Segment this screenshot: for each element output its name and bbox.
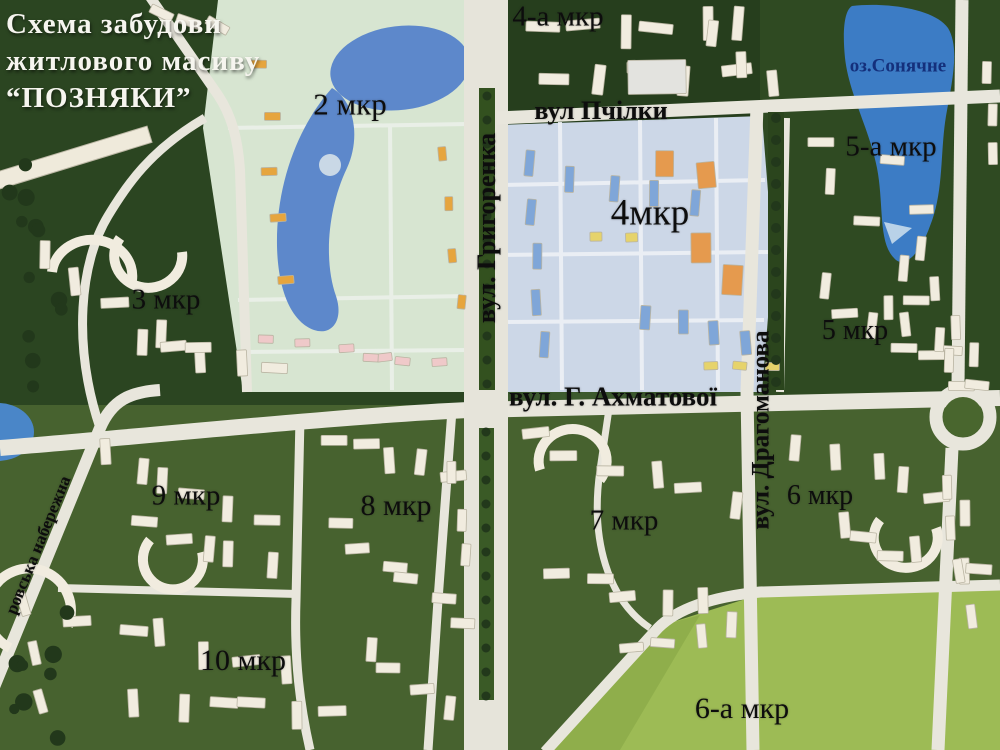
model-building [988, 104, 998, 126]
district-label-6a-mkr: 6-а мкр [695, 694, 789, 724]
model-building [539, 331, 550, 358]
tree-dot [2, 185, 18, 201]
model-building [704, 362, 718, 371]
model-building [353, 439, 379, 449]
model-building [969, 343, 979, 367]
model-building [789, 435, 801, 462]
tree-dot [60, 605, 75, 620]
model-building [690, 190, 701, 217]
model-building [988, 142, 997, 164]
district-label-6mkr: 6 мкр [787, 482, 853, 510]
tree-dot [482, 572, 491, 581]
model-building [451, 618, 475, 629]
district-label-4a-mkr: 4-а мкр [512, 3, 603, 32]
model-building [960, 500, 970, 526]
model-building [531, 289, 542, 315]
model-building [264, 112, 280, 120]
model-building [292, 701, 302, 729]
tree-dot [483, 332, 492, 341]
model-building [874, 453, 885, 479]
model-building [621, 15, 631, 49]
model-building [698, 587, 709, 613]
tree-dot [482, 668, 491, 677]
model-building [652, 461, 664, 489]
model-building [982, 61, 991, 83]
model-building [966, 563, 993, 575]
model-building [457, 295, 466, 310]
tree-dot [482, 524, 491, 533]
model-building [898, 255, 909, 282]
model-building [877, 551, 903, 562]
model-building [656, 151, 674, 177]
district-label-7mkr: 7 мкр [590, 507, 659, 536]
model-building [564, 166, 574, 192]
tree-dot [16, 216, 28, 228]
model-building [237, 697, 265, 708]
tree-dot [17, 660, 28, 671]
district-label-9mkr: 9 мкр [152, 482, 221, 511]
model-building [254, 515, 280, 525]
tree-dot [482, 500, 491, 509]
district-label-4mkr: 4мкр [611, 195, 689, 232]
model-building [732, 361, 747, 370]
model-building [40, 241, 50, 269]
model-building [203, 536, 215, 563]
model-building [376, 663, 400, 673]
model-building [270, 213, 287, 222]
model-building [628, 60, 687, 95]
model-building [166, 533, 193, 545]
title-line-1: Схема забудови [6, 6, 260, 43]
model-building [318, 706, 346, 717]
model-building [137, 458, 149, 485]
median-lower [479, 428, 494, 700]
model-building [127, 689, 139, 718]
model-building [131, 515, 158, 527]
tree-dot [483, 380, 492, 389]
model-building [339, 344, 354, 353]
district-label-8mkr: 8 мкр [360, 491, 431, 521]
tree-dot [45, 646, 62, 663]
model-building [432, 593, 457, 605]
model-building [366, 637, 378, 662]
model-building [590, 232, 602, 241]
model-building [691, 233, 711, 263]
model-building [533, 243, 542, 269]
model-building [850, 531, 877, 543]
model-building [447, 461, 456, 483]
model-building [185, 342, 211, 352]
model-building [650, 638, 675, 649]
tree-dot [482, 476, 491, 485]
tree-dot [482, 548, 491, 557]
model-building [432, 358, 447, 367]
model-building [100, 438, 111, 465]
tree-dot [9, 704, 19, 714]
model-building [726, 612, 737, 638]
model-building [909, 205, 933, 215]
tree-dot [482, 452, 491, 461]
district-label-5mkr: 5 мкр [822, 317, 888, 345]
model-building [261, 167, 277, 175]
tree-dot [483, 92, 492, 101]
model-building [663, 590, 673, 616]
tree-dot [482, 644, 491, 653]
district-label-10mkr: 10 мкр [200, 646, 286, 676]
model-building [236, 350, 247, 376]
model-building [942, 475, 952, 499]
model-building [444, 696, 456, 721]
model-building [160, 340, 187, 352]
model-building [696, 624, 707, 649]
model-building [696, 161, 716, 189]
model-building [295, 339, 310, 347]
tree-dot [24, 272, 35, 283]
model-building [258, 335, 273, 343]
tree-dot [44, 668, 57, 681]
model-building [678, 310, 688, 334]
tree-dot [771, 157, 781, 167]
street-label-akhmatovoi: вул. Г. Ахматової [509, 384, 717, 411]
model-building [101, 297, 129, 308]
tree-dot [18, 189, 35, 206]
model-building [223, 541, 234, 567]
tree-dot [771, 311, 781, 321]
model-building [525, 199, 536, 226]
model-building [261, 362, 288, 373]
street-label-drahomanova: вул. Драгоманова [749, 330, 774, 529]
tree-dot [50, 730, 66, 746]
model-building [945, 516, 955, 540]
tree-dot [482, 620, 491, 629]
model-building [457, 509, 467, 531]
model-building [524, 150, 535, 177]
model-building [708, 321, 719, 346]
model-building [736, 52, 747, 78]
model-building [395, 356, 411, 365]
model-building [722, 264, 744, 295]
model-building [597, 466, 624, 476]
model-building [934, 327, 944, 351]
district-label-3mkr: 3 мкр [132, 286, 201, 315]
model-building [587, 574, 613, 584]
tree-dot [482, 692, 491, 701]
model-building [438, 146, 447, 161]
map-title: Схема забудови житлового масиву “ПОЗНЯКИ… [6, 6, 260, 117]
model-building [153, 618, 165, 647]
model-building [345, 543, 370, 555]
model-building [903, 296, 929, 305]
tree-dot [55, 303, 68, 316]
model-building [543, 568, 569, 579]
model-building [930, 276, 940, 300]
model-building [609, 590, 636, 602]
model-building [767, 70, 779, 97]
model-building [808, 138, 834, 147]
model-building [278, 275, 295, 284]
model-building [210, 697, 239, 709]
lake-label-soniachne: оз.Сонячне [850, 57, 946, 76]
district-label-2mkr: 2 мкр [313, 89, 386, 120]
street-label-pchilky: вул Пчілки [534, 98, 667, 124]
model-building [550, 451, 577, 461]
model-building [951, 315, 961, 339]
model-building [445, 197, 453, 211]
tree-dot [771, 267, 781, 277]
title-line-2: житлового масиву [6, 43, 260, 80]
model-building [674, 482, 702, 494]
model-building [393, 572, 418, 584]
model-building [897, 466, 909, 493]
tree-dot [25, 353, 41, 369]
tree-dot [771, 135, 781, 145]
model-building [619, 642, 644, 653]
tree-dot [771, 223, 781, 233]
tree-dot [771, 179, 781, 189]
pozniaky-masterplan-photo: Схема забудови житлового масиву “ПОЗНЯКИ… [0, 0, 1000, 750]
model-building [120, 624, 149, 636]
tree-dot [771, 201, 781, 211]
tree-dot [483, 116, 492, 125]
model-building [222, 496, 233, 522]
model-building [329, 518, 353, 529]
model-building [321, 435, 347, 445]
model-building [944, 348, 954, 372]
tree-dot [771, 289, 781, 299]
tree-dot [482, 596, 491, 605]
model-building [383, 447, 395, 474]
model-building [854, 216, 880, 226]
model-building [448, 248, 457, 263]
tree-dot [771, 113, 781, 123]
tree-dot [27, 380, 39, 392]
model-building [461, 544, 471, 567]
model-building [137, 329, 148, 355]
model-building [891, 343, 917, 352]
tree-dot [22, 330, 35, 343]
title-line-3: “ПОЗНЯКИ” [6, 80, 260, 117]
tree-dot [31, 223, 45, 237]
street-label-hryhorenka: вул. Григоренка [474, 133, 500, 323]
model-building [915, 236, 926, 261]
district-label-5a-mkr: 5-а мкр [845, 133, 936, 162]
model-building [363, 353, 378, 362]
model-building [839, 512, 851, 539]
model-building [830, 444, 841, 470]
model-building [625, 233, 637, 242]
model-building [539, 73, 569, 85]
roundabout [936, 390, 990, 444]
tree-dot [483, 356, 492, 365]
model-building [179, 694, 190, 722]
tree-dot [19, 158, 32, 171]
model-building [267, 552, 279, 579]
model-building [640, 305, 651, 330]
model-building [410, 683, 435, 695]
tree-dot [771, 245, 781, 255]
model-building [825, 168, 835, 194]
tree-dot [482, 428, 491, 437]
model-building [909, 536, 921, 563]
model-building [377, 352, 393, 362]
